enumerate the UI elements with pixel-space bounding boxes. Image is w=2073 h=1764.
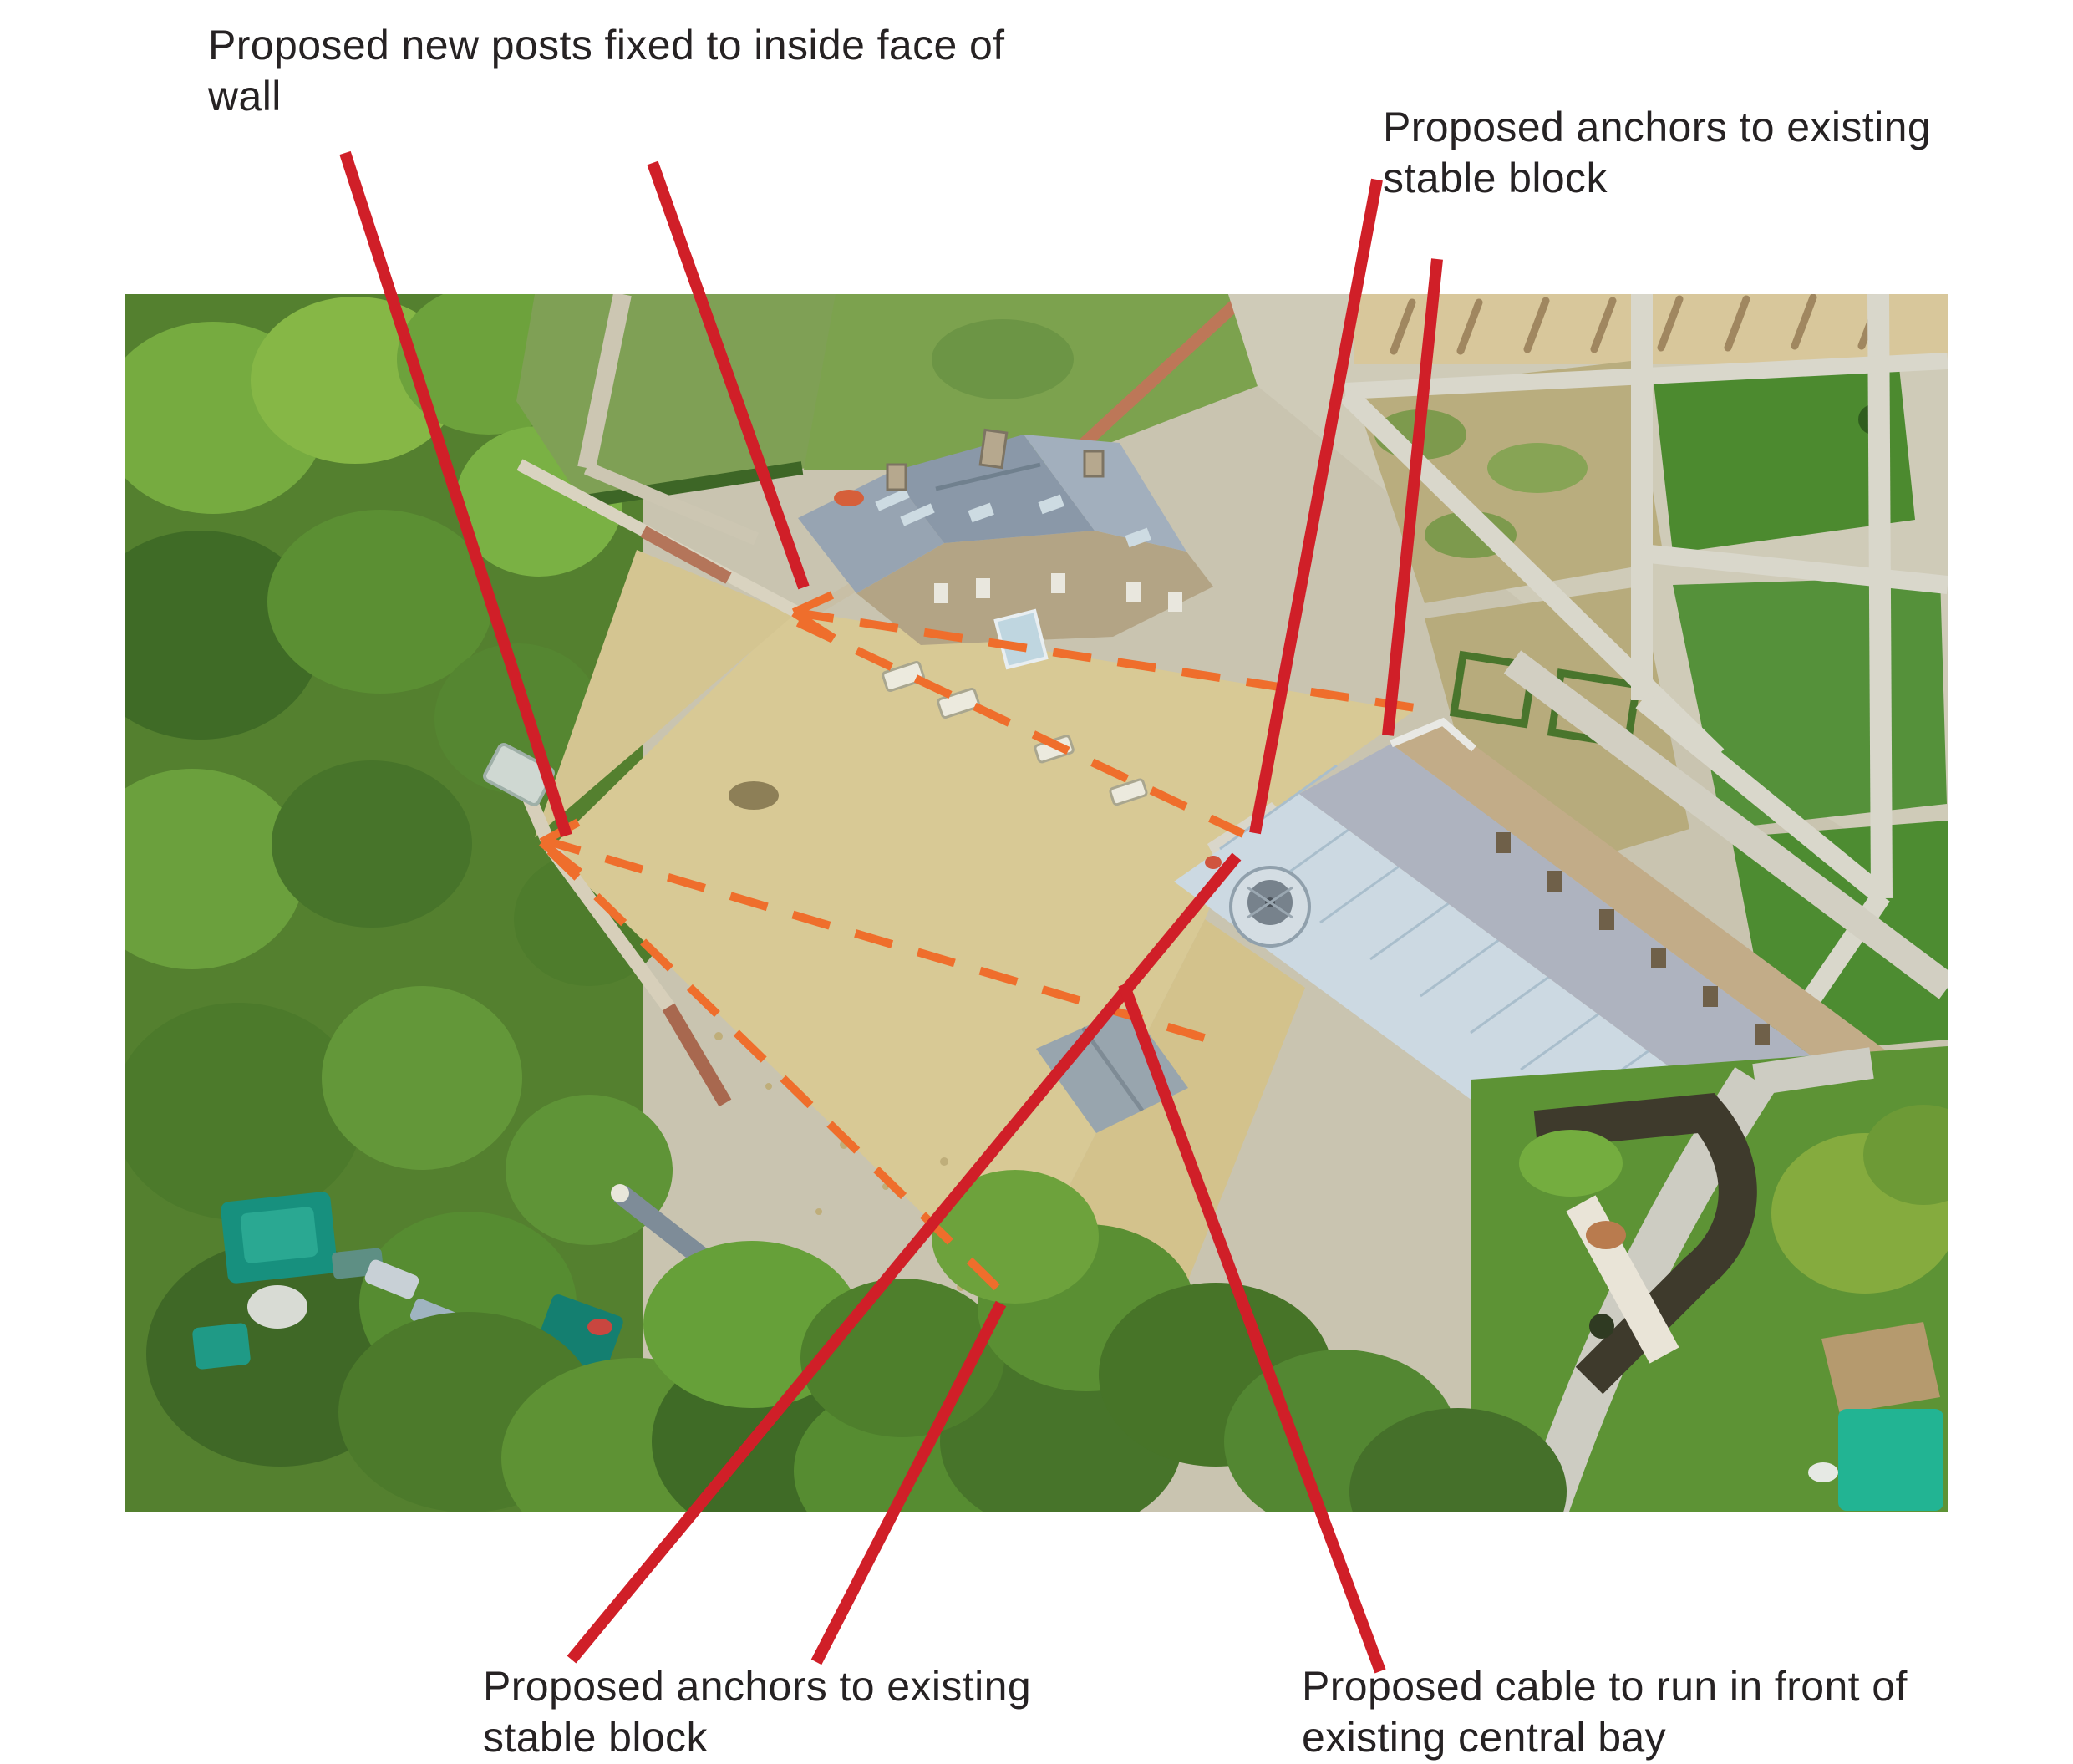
callout-anchors-bottom: Proposed anchors to existing stable bloc… xyxy=(483,1661,1031,1763)
white-tank xyxy=(247,1285,307,1329)
callout-anchors-top-line1: Proposed anchors to existing xyxy=(1383,102,1931,153)
red-planter xyxy=(834,490,864,506)
flower-bed-rust xyxy=(1586,1221,1626,1249)
callout-anchors-top: Proposed anchors to existing stable bloc… xyxy=(1383,102,1931,204)
aerial-photo xyxy=(125,294,1948,1512)
callout-new-posts: Proposed new posts fixed to inside face … xyxy=(208,20,1004,122)
callout-cable: Proposed cable to run in front of existi… xyxy=(1302,1661,1908,1763)
callout-new-posts-line1: Proposed new posts fixed to inside face … xyxy=(208,20,1004,71)
callout-anchors-bottom-line1: Proposed anchors to existing xyxy=(483,1661,1031,1712)
callout-cable-line1: Proposed cable to run in front of xyxy=(1302,1661,1908,1712)
callout-anchors-top-line2: stable block xyxy=(1383,153,1931,204)
page: Proposed new posts fixed to inside face … xyxy=(0,0,2073,1764)
green-shed-small xyxy=(192,1323,252,1370)
aerial-photo-scene xyxy=(125,294,1948,1512)
callout-cable-line2: existing central bay xyxy=(1302,1712,1908,1763)
callout-new-posts-line2: wall xyxy=(208,71,1004,122)
topiary xyxy=(1589,1314,1614,1339)
callout-anchors-bottom-line2: stable block xyxy=(483,1712,1031,1763)
teal-cover xyxy=(1838,1409,1943,1511)
